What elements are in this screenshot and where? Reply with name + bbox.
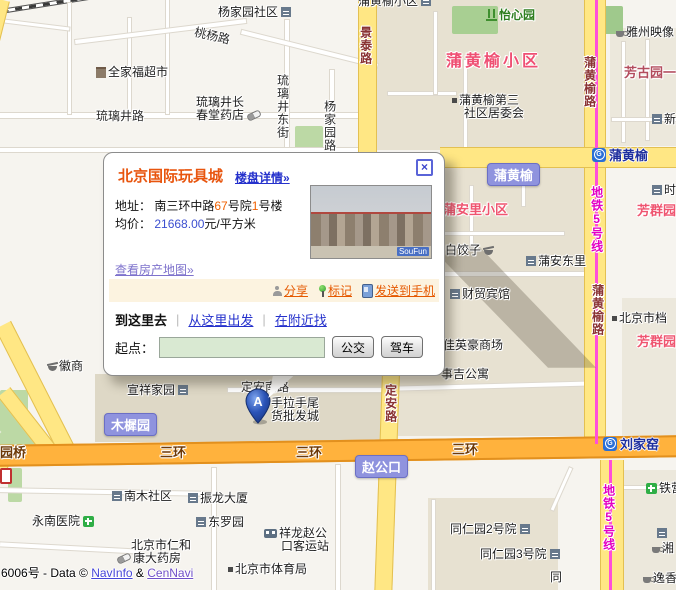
map-label: 琉璃井东街	[276, 74, 289, 139]
place-badge-puhuangyu: 蒲黄榆	[487, 163, 540, 186]
detail-link[interactable]: 楼盘详情»	[235, 169, 290, 186]
street	[0, 19, 69, 31]
hospital-icon	[83, 516, 94, 527]
map-label: 宣祥家园	[127, 384, 190, 397]
bus-station-icon	[264, 529, 277, 538]
address-text: 南三环中路	[154, 199, 214, 213]
building-icon	[421, 0, 431, 6]
street	[68, 3, 71, 114]
place-badge-muxiyuan: 木樨园	[104, 413, 157, 436]
map-viewport[interactable]: 杨家园社区桃杨路全家福超市琉璃井长春堂药店琉璃井路琉璃井东街杨家园路蒲黄榆小区怡…	[0, 0, 676, 590]
share-bar: 分享 标记 发送到手机	[109, 279, 439, 302]
address-label: 地址：	[115, 199, 151, 213]
building-icon	[657, 528, 667, 538]
map-label: 时	[652, 184, 676, 197]
find-nearby-link[interactable]: 在附近找	[275, 310, 327, 329]
drive-button[interactable]: 驾车	[381, 336, 423, 358]
building-icon	[188, 493, 198, 503]
map-label: 桃杨路	[193, 26, 231, 46]
price-value: 21668.00	[154, 217, 204, 231]
map-label: 杨家园路	[323, 100, 336, 152]
building-icon	[112, 491, 122, 501]
map-label: 新	[652, 113, 676, 126]
park-icon	[486, 9, 497, 21]
map-label: 蒲黄榆路	[583, 56, 596, 108]
photo-buildings	[311, 212, 431, 246]
map-label: 铁营	[646, 482, 676, 495]
info-popup: 北京国际玩具城 楼盘详情» × 地址： 南三环中路67号院1号楼 均价： 216…	[103, 152, 445, 376]
map-label: 口客运站	[281, 540, 329, 553]
map-label: 佳英豪商场	[443, 339, 503, 352]
map-label: 湘	[652, 542, 674, 555]
shop-icon	[96, 67, 106, 78]
map-label: 雅州映像	[616, 26, 674, 39]
map-label: 地铁5号线	[602, 484, 615, 551]
map-label: 春堂药店	[196, 109, 263, 122]
building-icon	[178, 385, 188, 395]
close-icon[interactable]: ×	[416, 159, 433, 176]
street	[432, 500, 435, 590]
marker-a[interactable]: A	[244, 388, 272, 431]
map-label: 事吉公寓	[441, 368, 489, 381]
district-block	[610, 28, 676, 146]
from-here-link[interactable]: 从这里出发	[188, 310, 253, 329]
map-label: 手拉手尾	[271, 397, 319, 410]
address-text: 号院	[228, 199, 252, 213]
popup-title: 北京国际玩具城	[118, 165, 223, 186]
street	[646, 40, 649, 140]
address-text: 号楼	[258, 199, 282, 213]
street	[0, 488, 212, 496]
street	[212, 468, 216, 590]
attribution: 6006号 - Data © NavInfo & CenNavi	[1, 564, 193, 581]
metro-station-puhuangyu: G蒲黄榆	[592, 145, 648, 164]
map-label	[657, 528, 669, 538]
map-label: 北京市档	[612, 312, 667, 325]
place-badge-zhaogongkou: 赵公口	[355, 455, 408, 478]
map-label: 财贸宾馆	[450, 288, 510, 301]
start-input[interactable]	[159, 337, 325, 358]
building-icon	[550, 549, 560, 559]
map-label: 蒲黄榆第三	[452, 94, 519, 107]
send-to-phone-link[interactable]: 发送到手机	[362, 282, 435, 299]
cennavi-link[interactable]: CenNavi	[147, 566, 193, 580]
building-icon	[281, 7, 291, 17]
map-label	[0, 468, 14, 484]
map-label: 定安路	[384, 384, 397, 423]
map-label: 琉璃井路	[96, 110, 144, 123]
map-label: 蒲黄榆路	[591, 284, 604, 336]
attribution-text: &	[133, 566, 148, 580]
map-label: 芳古园一区	[624, 66, 676, 80]
map-label: 蒲安东里	[526, 255, 586, 268]
road-sign-icon	[0, 468, 12, 484]
map-label: 蒲黄榆小区	[358, 0, 433, 8]
map-label: 货批发城	[271, 410, 319, 423]
metro-logo-icon: G	[592, 148, 606, 162]
map-label: 杨家园社区	[218, 6, 293, 19]
map-label: 康大药房	[117, 552, 181, 565]
poi-dot-icon	[452, 98, 457, 103]
metro-logo-icon: G	[603, 437, 617, 451]
building-icon	[196, 517, 206, 527]
district-block	[428, 498, 558, 590]
map-label: 三环	[452, 443, 478, 457]
phone-icon	[362, 284, 373, 298]
pharmacy-icon	[116, 552, 132, 564]
separator: |	[176, 312, 179, 327]
go-here-label: 到这里去	[115, 310, 167, 329]
mark-link[interactable]: 标记	[318, 282, 352, 299]
map-label: 三环	[296, 446, 322, 460]
teahouse-icon	[616, 31, 624, 37]
street	[166, 0, 169, 114]
restaurant-icon	[48, 366, 57, 371]
street	[388, 92, 456, 95]
teahouse-icon	[652, 547, 660, 553]
price-unit: 元/平方米	[204, 217, 255, 231]
soufun-watermark: SouFun	[397, 247, 429, 256]
attribution-text: 6006号 - Data ©	[1, 566, 91, 580]
road-jingtai	[358, 0, 377, 153]
map-label: 徽商	[48, 360, 83, 373]
street	[0, 113, 358, 118]
street	[470, 186, 473, 248]
map-label: 琉璃井长	[196, 96, 244, 109]
hospital-icon	[646, 483, 657, 494]
building-icon	[520, 524, 530, 534]
railway-line	[0, 0, 119, 14]
map-label: 蒲黄榆小区	[446, 54, 541, 71]
map-label: 同	[550, 571, 562, 584]
building-icon	[652, 185, 662, 195]
teahouse-icon	[643, 577, 651, 583]
map-label: 白饺子	[445, 244, 495, 257]
building-icon	[450, 289, 460, 299]
map-label: 芳群园	[637, 204, 676, 218]
building-icon	[652, 114, 662, 124]
street	[622, 42, 625, 142]
directions-row: 到这里去 | 从这里出发 | 在附近找	[115, 310, 327, 329]
address-row: 地址： 南三环中路67号院1号楼	[115, 197, 282, 214]
photo-thumbnail[interactable]: SouFun	[310, 185, 432, 259]
map-label: 全家福超市	[96, 66, 168, 79]
price-row: 均价： 21668.00元/平方米	[115, 215, 256, 232]
pharmacy-icon	[246, 109, 262, 121]
separator: |	[262, 312, 265, 327]
price-label: 均价：	[115, 217, 151, 231]
start-row: 起点： 公交 驾车	[115, 336, 423, 358]
map-label: 北京市体育局	[228, 563, 307, 576]
marker-label: A	[253, 394, 263, 409]
map-label: 三环	[160, 446, 186, 460]
address-number: 67	[214, 199, 227, 213]
map-label: 振龙大厦	[188, 492, 248, 505]
map-label: 社区居委会	[464, 107, 524, 120]
poi-dot-icon	[612, 316, 617, 321]
street	[434, 12, 437, 94]
map-label: 永南医院	[32, 515, 96, 528]
map-label: 芳群园三区	[637, 335, 676, 349]
metro-station-liujiayao: G刘家窑	[603, 434, 659, 453]
map-label: 北京市仁和	[131, 539, 191, 552]
map-label: 逸香	[643, 572, 676, 585]
street	[551, 467, 572, 510]
map-label: 同仁园3号院	[480, 548, 562, 561]
pin-icon	[318, 285, 326, 297]
map-label: 南木社区	[112, 490, 172, 503]
property-map-link[interactable]: 查看房产地图»	[115, 261, 194, 278]
share-link[interactable]: 分享	[273, 282, 308, 299]
start-label: 起点：	[115, 338, 154, 357]
road-edge	[0, 0, 10, 48]
building-icon	[526, 256, 536, 266]
map-label: 蒲安里小区	[443, 203, 508, 217]
street	[336, 465, 340, 590]
poi-dot-icon	[228, 567, 233, 572]
navinfo-link[interactable]: NavInfo	[91, 566, 132, 580]
bus-button[interactable]: 公交	[332, 336, 374, 358]
map-label: 地铁5号线	[590, 186, 603, 253]
map-label: 祥龙赵公	[264, 527, 327, 540]
map-label: 景泰路	[359, 26, 372, 65]
map-label: 怡心园	[486, 9, 535, 22]
map-label: 园桥	[0, 446, 26, 460]
map-label: 同仁园2号院	[450, 523, 532, 536]
person-icon	[273, 286, 282, 296]
map-label: 东罗园	[196, 516, 244, 529]
restaurant-icon	[484, 250, 493, 255]
photo-sky	[311, 186, 431, 212]
